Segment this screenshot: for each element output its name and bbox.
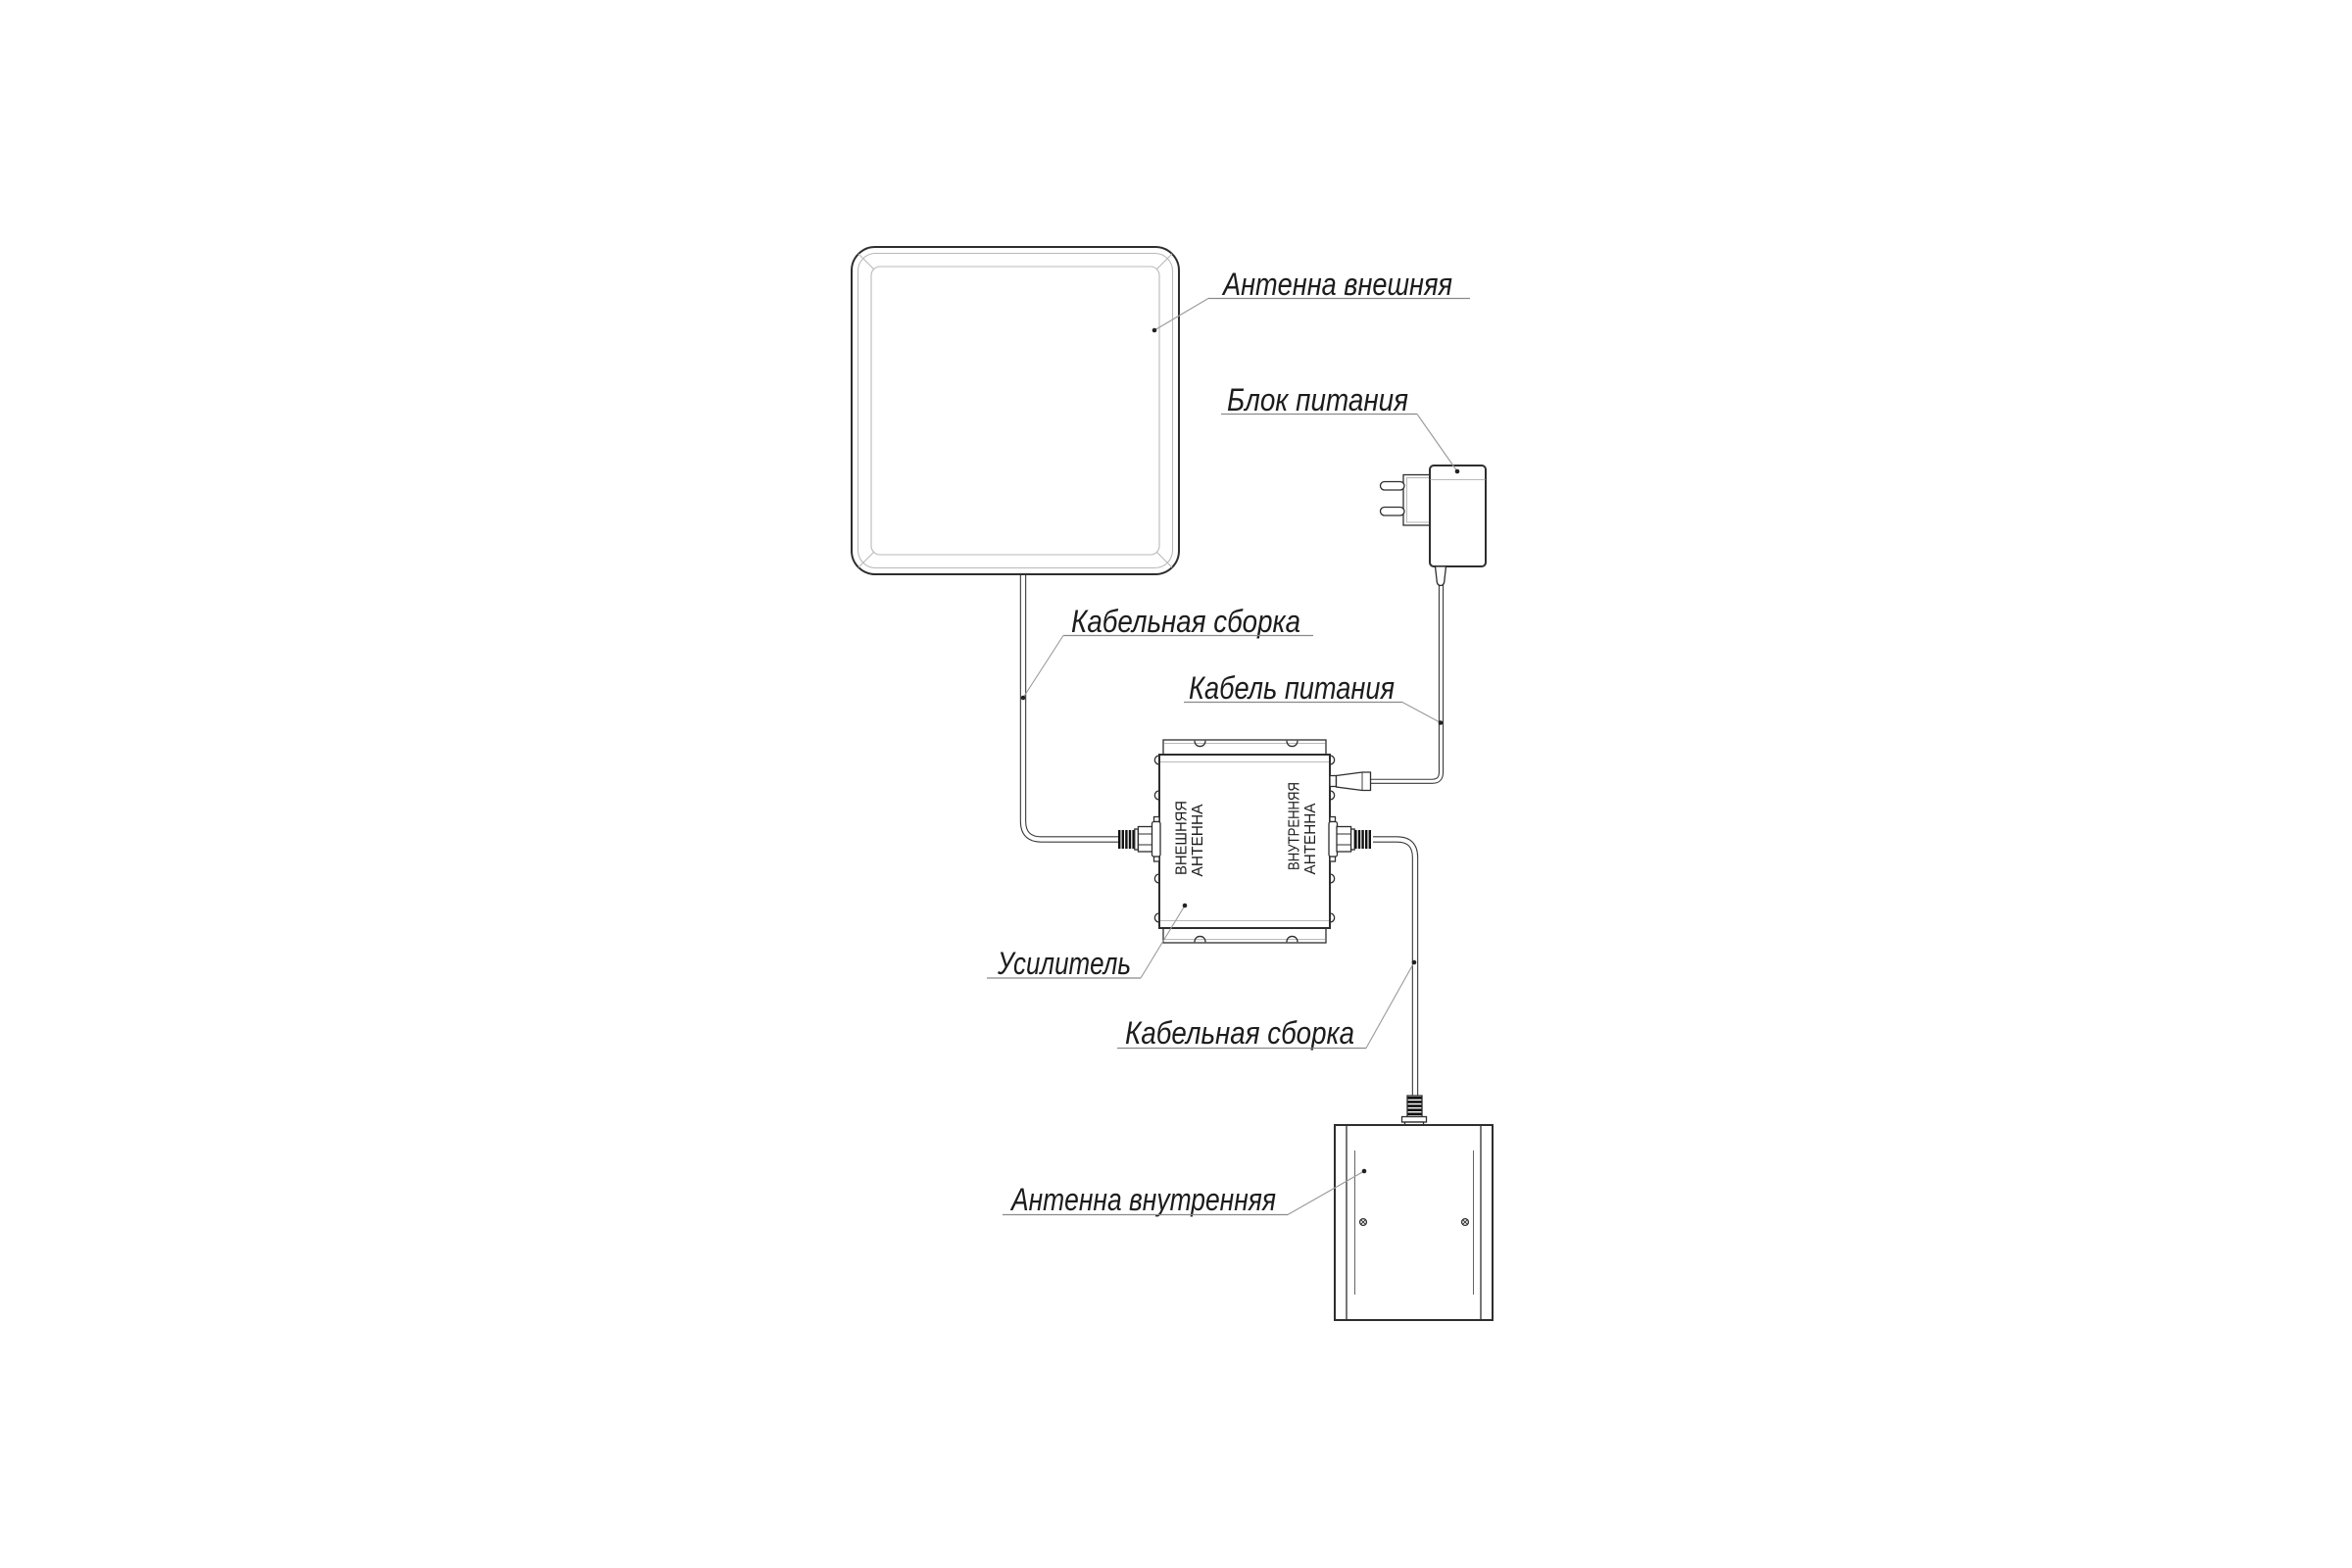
label-power-supply: Блок питания <box>1227 382 1408 417</box>
leader-cable-assembly-bottom <box>1366 962 1414 1049</box>
amplifier-unit: ВНЕШНЯЯ АНТЕННА ВНУТРЕННЯЯ АНТЕННА <box>1118 740 1371 943</box>
callout-cable-assembly-bottom: Кабельная сборка <box>1117 960 1416 1051</box>
leader-cable-assembly-top <box>1023 636 1063 699</box>
label-cable-assembly-bottom: Кабельная сборка <box>1125 1015 1354 1051</box>
dc-jack <box>1330 776 1337 787</box>
rf-right-nut <box>1337 827 1351 853</box>
label-power-cable: Кабель питания <box>1189 670 1395 706</box>
power-plug-block <box>1403 475 1430 526</box>
connection-diagram: ВНЕШНЯЯ АНТЕННА ВНУТРЕННЯЯ АНТЕННА <box>0 0 2352 1568</box>
power-supply-strain-relief <box>1436 566 1446 586</box>
label-amplifier: Усилитель <box>997 946 1131 981</box>
leader-dot-indoor-antenna <box>1362 1169 1367 1174</box>
drawing-canvas: ВНЕШНЯЯ АНТЕННА ВНУТРЕННЯЯ АНТЕННА <box>0 0 2352 1568</box>
leader-dot-cable-assembly-bottom <box>1412 960 1417 965</box>
leader-dot-power-cable <box>1439 720 1444 725</box>
rf-left-nut <box>1138 827 1152 853</box>
indoor-antenna-screw-left <box>1360 1219 1367 1226</box>
leader-dot-amplifier <box>1183 904 1188 908</box>
leader-power-supply <box>1417 415 1457 472</box>
leader-dot-outdoor-antenna <box>1152 328 1157 333</box>
port-label-indoor-line2: АНТЕННА <box>1302 803 1319 875</box>
leader-dot-cable-assembly-top <box>1021 696 1026 701</box>
indoor-antenna-unit <box>1335 1096 1493 1320</box>
leader-dot-power-supply <box>1455 469 1460 474</box>
rf-right-collar <box>1351 829 1355 850</box>
outdoor-antenna-outer-edge <box>852 247 1179 574</box>
amplifier-bottom-flange <box>1163 928 1326 944</box>
coax-cable-indoor <box>1373 840 1415 1099</box>
label-outdoor-antenna: Антенна внешняя <box>1221 267 1452 302</box>
coax-cable-indoor-outline <box>1373 840 1415 1099</box>
power-supply-body <box>1430 465 1486 566</box>
rf-left-flange <box>1152 822 1161 857</box>
outdoor-antenna-panel <box>852 247 1179 574</box>
power-plug-pin-top <box>1381 482 1405 491</box>
callout-power-cable: Кабель питания <box>1184 670 1443 725</box>
callout-power-supply: Блок питания <box>1221 382 1459 473</box>
port-label-outdoor-line2: АНТЕННА <box>1190 804 1206 877</box>
label-indoor-antenna: Антенна внутренняя <box>1009 1182 1276 1217</box>
port-label-indoor-line1: ВНУТРЕННЯЯ <box>1287 782 1303 870</box>
dc-plug-body <box>1337 772 1371 791</box>
callout-amplifier: Усилитель <box>987 904 1187 981</box>
power-supply-unit <box>1381 465 1487 586</box>
coax-cable-indoor-core <box>1373 840 1415 1099</box>
leader-power-cable <box>1402 703 1441 723</box>
indoor-antenna-screw-right <box>1462 1219 1469 1226</box>
callout-indoor-antenna: Антенна внутренняя <box>1003 1169 1366 1217</box>
amplifier-top-flange <box>1163 740 1326 756</box>
power-plug-pin-bottom <box>1381 508 1405 516</box>
rf-connector-left <box>1118 817 1160 862</box>
dc-power-plug <box>1330 772 1371 791</box>
port-label-outdoor-line1: ВНЕШНЯЯ <box>1174 801 1191 875</box>
rf-right-flange <box>1329 822 1338 857</box>
rf-connector-right <box>1329 817 1371 862</box>
callout-outdoor-antenna: Антенна внешняя <box>1152 267 1470 332</box>
label-cable-assembly-top: Кабельная сборка <box>1071 604 1300 639</box>
indoor-connector-nut <box>1402 1117 1427 1123</box>
